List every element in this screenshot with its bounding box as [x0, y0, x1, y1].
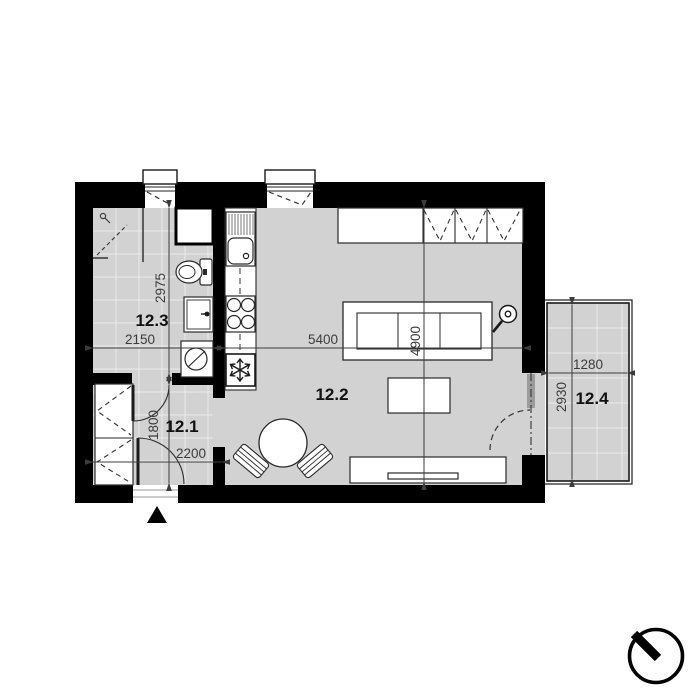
dim-balcony-width: 1280	[573, 357, 603, 372]
kitchen	[225, 208, 256, 390]
room-label-hall: 12.1	[165, 417, 198, 436]
floor-plan-page: 2150 5400 4900 2975 1800 2200 1280 2930 …	[0, 0, 700, 700]
room-label-bathroom: 12.3	[135, 311, 168, 330]
north-indicator	[630, 630, 683, 683]
dim-balcony-height: 2930	[554, 382, 569, 412]
room-label-balcony: 12.4	[575, 389, 609, 408]
wall-kitchen-bath	[213, 208, 225, 398]
basin-tap-icon	[205, 312, 210, 317]
window-sill	[265, 170, 315, 184]
washing-machine	[181, 341, 213, 377]
floor-plan-drawing: 2150 5400 4900 2975 1800 2200 1280 2930 …	[0, 0, 700, 700]
kitchen-hob	[226, 296, 255, 332]
wall-left	[75, 182, 93, 503]
window-opening	[267, 182, 313, 208]
tv	[388, 473, 458, 479]
toilet	[176, 259, 212, 285]
tv-sideboard	[350, 457, 506, 483]
hall-wardrobe	[95, 384, 133, 485]
window-sill	[143, 170, 177, 184]
dim-living-height: 4900	[408, 326, 423, 356]
room-label-living: 12.2	[315, 385, 348, 404]
washbasin	[184, 297, 213, 332]
dim-living-width: 5400	[308, 332, 338, 347]
sink-bowl	[228, 238, 253, 264]
wall-hall-living-stub	[213, 447, 225, 485]
dim-bathroom-height: 2975	[153, 273, 168, 303]
ventilation-shaft	[176, 208, 213, 244]
dim-hall-width: 2200	[176, 446, 206, 461]
window-opening	[145, 182, 175, 208]
wall-bath-hall-left	[93, 373, 132, 385]
fridge	[226, 354, 255, 386]
window-bathroom	[143, 170, 177, 208]
coffee-table	[388, 378, 450, 413]
dining-table	[259, 419, 307, 467]
wardrobe-top	[338, 208, 523, 243]
entrance-opening	[133, 485, 178, 503]
window-living	[265, 170, 315, 208]
dim-hall-height: 1800	[146, 410, 161, 440]
dim-bathroom-width: 2150	[125, 332, 155, 347]
kitchen-sink	[226, 212, 255, 266]
